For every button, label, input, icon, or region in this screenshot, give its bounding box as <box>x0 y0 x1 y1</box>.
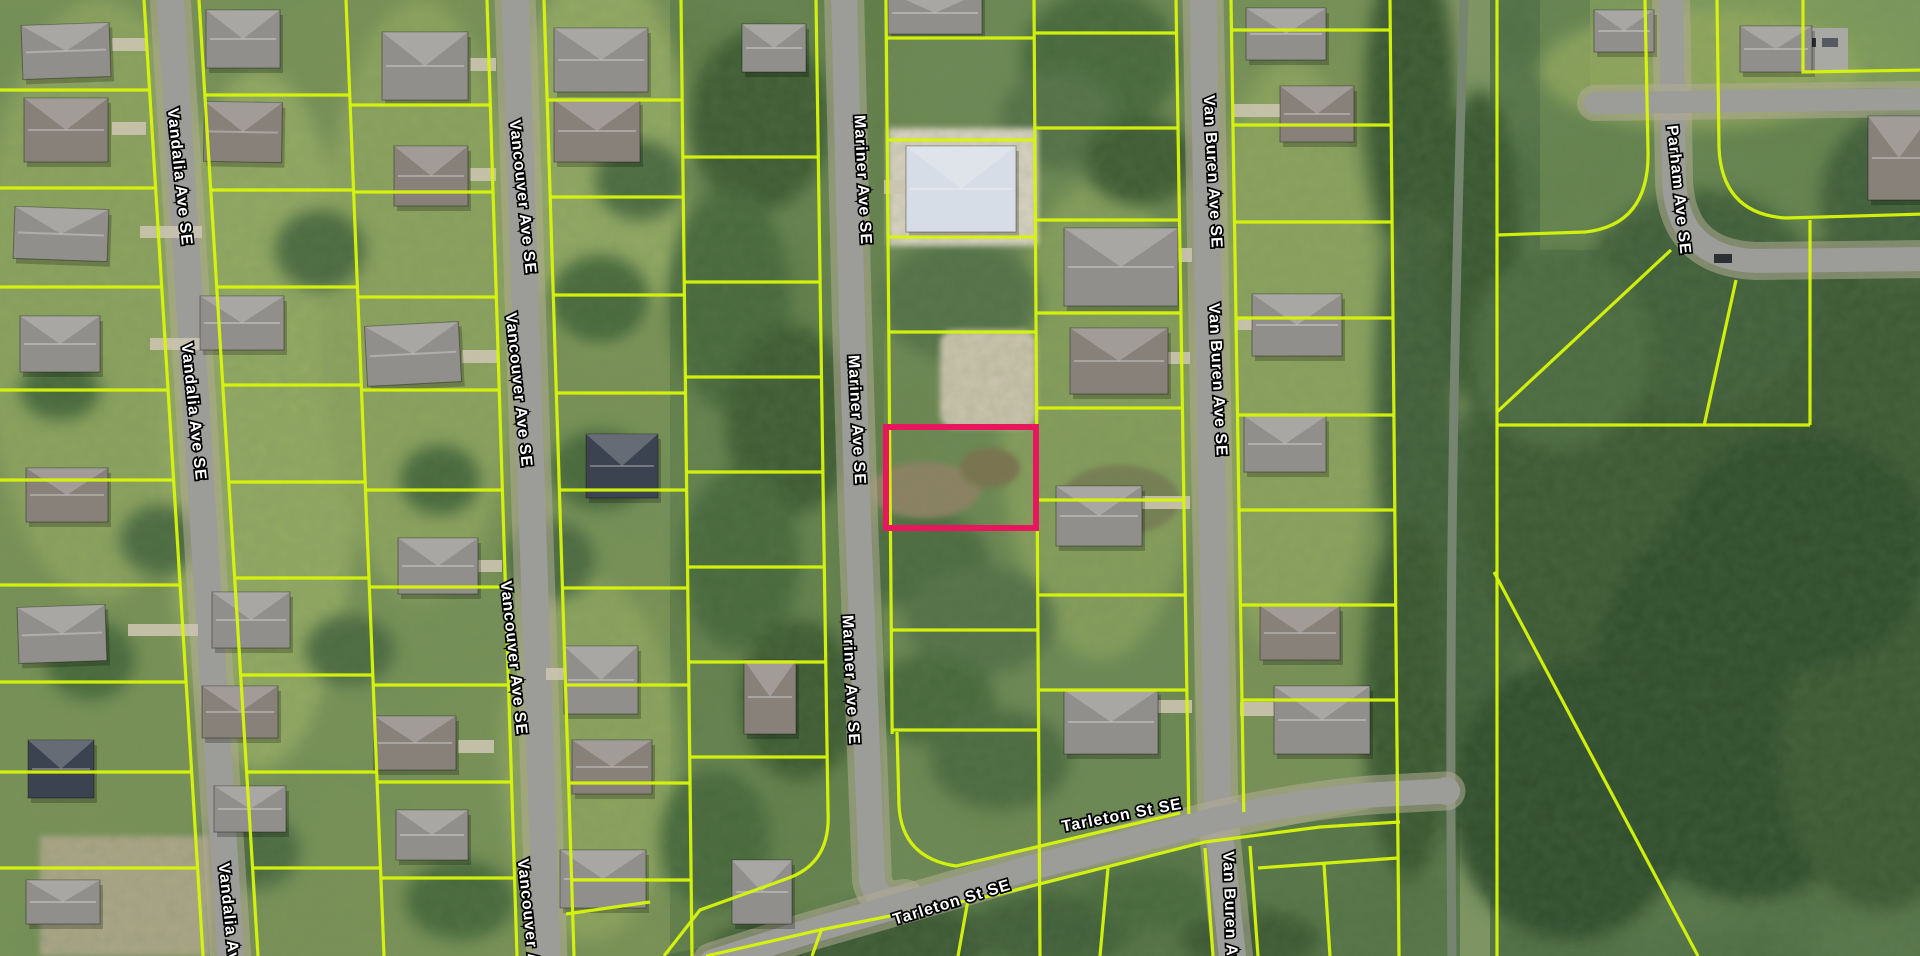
house <box>1868 116 1920 205</box>
driveway <box>128 624 198 636</box>
house <box>1064 690 1161 759</box>
house <box>212 592 293 653</box>
aerial-map: Vandalia Ave SEVandalia Ave SEVandalia A… <box>0 0 1920 956</box>
house <box>564 646 641 719</box>
driveway <box>112 122 146 135</box>
house <box>13 206 112 266</box>
driveway <box>1240 702 1276 716</box>
driveway <box>462 350 498 363</box>
house <box>24 98 111 167</box>
house <box>17 604 110 668</box>
house <box>742 24 809 77</box>
house <box>1252 294 1345 361</box>
driveway <box>1234 104 1282 117</box>
house <box>1056 486 1145 551</box>
house <box>888 0 985 39</box>
tarleton-dead-end <box>1432 777 1460 805</box>
house <box>1274 686 1373 759</box>
house <box>26 880 103 929</box>
house <box>398 538 481 599</box>
house <box>1246 8 1329 65</box>
map-canvas[interactable]: Vandalia Ave SEVandalia Ave SEVandalia A… <box>0 0 1920 956</box>
house <box>374 716 459 775</box>
road-top-right-street <box>1595 99 1920 103</box>
house <box>572 740 655 799</box>
driveway <box>478 560 502 572</box>
house <box>1260 606 1343 665</box>
house <box>20 316 103 377</box>
house <box>586 434 661 503</box>
house <box>206 10 283 73</box>
driveway <box>1236 318 1254 330</box>
house <box>21 22 114 84</box>
house <box>382 32 471 105</box>
house <box>744 660 799 739</box>
driveway <box>1168 352 1190 364</box>
house <box>1280 86 1357 147</box>
house <box>554 100 643 167</box>
driveway <box>112 38 146 51</box>
car <box>1714 254 1732 263</box>
driveway <box>470 58 496 71</box>
house <box>554 28 651 97</box>
house <box>1244 416 1329 477</box>
house <box>394 146 471 211</box>
house <box>906 146 1019 237</box>
house <box>200 296 287 355</box>
driveway <box>458 740 494 753</box>
house <box>1064 228 1181 311</box>
house <box>26 468 111 527</box>
house <box>364 321 464 391</box>
house <box>203 101 285 167</box>
house <box>1070 328 1171 399</box>
house <box>396 810 471 865</box>
car <box>1822 38 1838 47</box>
driveway <box>546 668 566 680</box>
